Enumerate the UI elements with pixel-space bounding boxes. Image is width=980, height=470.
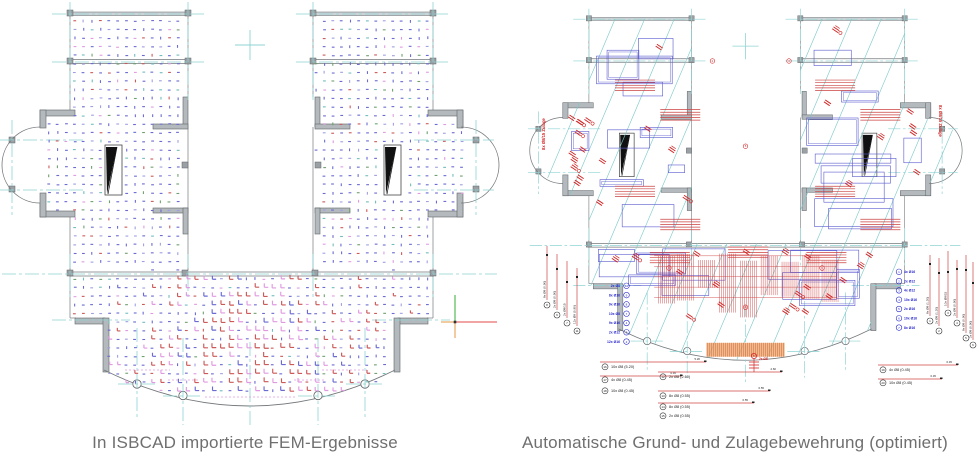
svg-text:1: 1 (929, 319, 931, 323)
svg-text:3: 3 (898, 289, 900, 293)
svg-text:14: 14 (661, 405, 665, 409)
svg-text:8x Ø8 (0.90): 8x Ø8 (0.90) (962, 314, 966, 331)
svg-text:5: 5 (965, 336, 967, 340)
svg-text:4: 4 (898, 298, 900, 302)
svg-text:0.55: 0.55 (759, 386, 765, 390)
svg-text:4: 4 (956, 321, 958, 325)
svg-text:2x Ø8 (0.55): 2x Ø8 (0.55) (669, 414, 691, 418)
svg-text:8: 8 (626, 303, 628, 307)
svg-text:8x Ø8/15 Zulage: 8x Ø8/15 Zulage (541, 117, 546, 150)
fem-rebar-comparison: { "captions": { "left": "In ISBCAD impor… (0, 0, 980, 470)
svg-text:0.45: 0.45 (947, 360, 953, 364)
fem-results-drawing (0, 0, 500, 425)
svg-text:10x Ø16: 10x Ø16 (904, 298, 917, 302)
svg-text:18: 18 (603, 389, 607, 393)
svg-text:12: 12 (661, 375, 665, 379)
svg-text:9x Ø16: 9x Ø16 (609, 303, 620, 307)
svg-text:16: 16 (603, 365, 607, 369)
svg-text:4x Ø16: 4x Ø16 (904, 270, 915, 274)
svg-text:12x Ø8 (0.90): 12x Ø8 (0.90) (573, 305, 577, 324)
svg-text:6: 6 (972, 343, 974, 347)
svg-text:2x Ø8: 2x Ø8 (611, 284, 620, 288)
svg-text:1: 1 (898, 270, 900, 274)
svg-text:21: 21 (752, 354, 756, 358)
svg-text:2x Ø8 (0.90): 2x Ø8 (0.90) (969, 321, 973, 338)
svg-text:8x Ø8 (0.55): 8x Ø8 (0.55) (669, 405, 691, 409)
svg-text:7: 7 (898, 326, 900, 330)
svg-text:6: 6 (898, 317, 900, 321)
svg-text:10x Ø8 (0.45): 10x Ø8 (0.45) (611, 389, 635, 393)
svg-text:8x Ø8 (0.55): 8x Ø8 (0.55) (669, 394, 691, 398)
svg-text:5: 5 (898, 307, 900, 311)
svg-text:2x Ø8/15: 2x Ø8/15 (563, 303, 567, 316)
svg-text:8x Ø8 (0.90): 8x Ø8 (0.90) (543, 281, 547, 298)
svg-text:13: 13 (661, 394, 665, 398)
caption-fem: In ISBCAD importierte FEM-Ergebnisse (0, 433, 490, 453)
svg-text:7: 7 (626, 312, 628, 316)
svg-text:15: 15 (661, 414, 665, 418)
svg-text:2: 2 (712, 59, 714, 63)
svg-text:8x Ø8/15 Zulage: 8x Ø8/15 Zulage (938, 105, 943, 138)
svg-text:17: 17 (603, 378, 607, 382)
svg-text:2: 2 (938, 329, 940, 333)
svg-text:2x Ø8 (0.90): 2x Ø8 (0.90) (953, 299, 957, 316)
svg-text:5.20: 5.20 (695, 357, 701, 361)
svg-text:12x Ø16: 12x Ø16 (607, 340, 620, 344)
svg-text:2: 2 (626, 340, 628, 344)
svg-text:2x Ø8: 2x Ø8 (759, 357, 768, 361)
svg-text:4x Ø12: 4x Ø12 (904, 289, 915, 293)
svg-text:3: 3 (947, 311, 949, 315)
svg-text:2x Ø16: 2x Ø16 (904, 307, 915, 311)
svg-text:0.45: 0.45 (931, 374, 937, 378)
svg-text:2.60: 2.60 (771, 367, 777, 371)
svg-text:10x Ø8/15: 10x Ø8/15 (944, 291, 948, 306)
reinforcement-drawing: 5496232x Ø8108x Ø1699x Ø16810x Ø879x Ø16… (490, 0, 980, 425)
svg-text:3: 3 (626, 331, 628, 335)
caption-rebar: Automatische Grund- und Zulagebewehrung … (490, 433, 980, 453)
svg-text:2x Ø8 (0.90): 2x Ø8 (0.90) (553, 291, 557, 308)
svg-text:8x Ø8 (1.20): 8x Ø8 (1.20) (926, 297, 930, 314)
svg-text:9: 9 (668, 266, 670, 270)
svg-text:9x Ø16: 9x Ø16 (609, 321, 620, 325)
svg-text:0.55: 0.55 (743, 398, 749, 402)
svg-text:19: 19 (881, 368, 885, 372)
svg-text:2x Ø8 (1.20): 2x Ø8 (1.20) (935, 307, 939, 324)
svg-text:11: 11 (575, 329, 578, 333)
svg-text:8x Ø16: 8x Ø16 (609, 293, 620, 297)
svg-text:2: 2 (898, 279, 900, 283)
svg-text:10x Ø8 (0.45): 10x Ø8 (0.45) (889, 381, 913, 385)
svg-text:5: 5 (745, 144, 747, 148)
svg-text:4x Ø8 (0.45): 4x Ø8 (0.45) (611, 378, 633, 382)
svg-text:7: 7 (566, 321, 568, 325)
svg-text:2x Ø8 (2.60): 2x Ø8 (2.60) (669, 375, 691, 379)
svg-text:20: 20 (881, 381, 885, 385)
svg-text:10x Ø8: 10x Ø8 (609, 312, 620, 316)
svg-text:2x Ø12: 2x Ø12 (609, 331, 620, 335)
svg-text:2x Ø12: 2x Ø12 (904, 279, 915, 283)
svg-text:10x Ø16: 10x Ø16 (904, 317, 917, 321)
svg-text:4x Ø8 (0.45): 4x Ø8 (0.45) (889, 368, 911, 372)
svg-text:10x Ø8 (5.20): 10x Ø8 (5.20) (611, 365, 635, 369)
svg-text:8: 8 (546, 303, 548, 307)
svg-text:4: 4 (626, 321, 628, 325)
svg-text:10: 10 (625, 284, 629, 288)
svg-text:8x Ø16: 8x Ø16 (904, 326, 915, 330)
svg-text:6: 6 (821, 266, 823, 270)
svg-text:9: 9 (626, 293, 628, 297)
svg-text:9: 9 (556, 313, 558, 317)
